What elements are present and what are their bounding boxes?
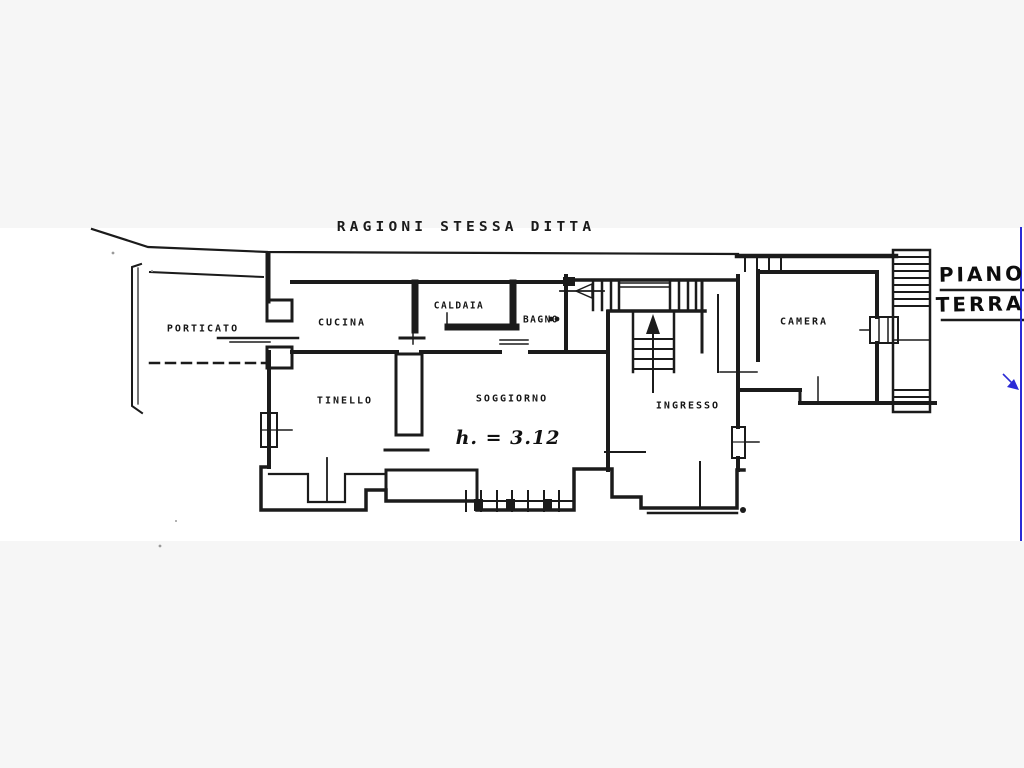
floor-plan-scan [0,0,1024,768]
room-label-tinello: TINELLO [317,396,373,407]
room-label-cucina: CUCINA [318,318,366,329]
room-label-camera: CAMERA [780,317,828,328]
room-label-soggiorno: SOGGIORNO [476,394,548,405]
screenshot-stage: RAGIONI STESSA DITTA PORTICATO CUCINA CA… [0,0,1024,768]
room-label-ingresso: INGRESSO [656,401,720,412]
top-margin [0,0,1024,228]
room-label-caldaia: CALDAIA [434,301,485,312]
room-label-porticato: PORTICATO [167,324,239,335]
room-label-bagno: BAGNO [523,315,559,326]
floor-label-piano: PIANO [939,261,1024,287]
floor-label-terra: TERRA [936,291,1024,317]
plan-header-note: RAGIONI STESSA DITTA [337,219,596,234]
bottom-margin [0,541,1024,768]
ceiling-height-annotation: h. = 3.12 [456,427,561,449]
